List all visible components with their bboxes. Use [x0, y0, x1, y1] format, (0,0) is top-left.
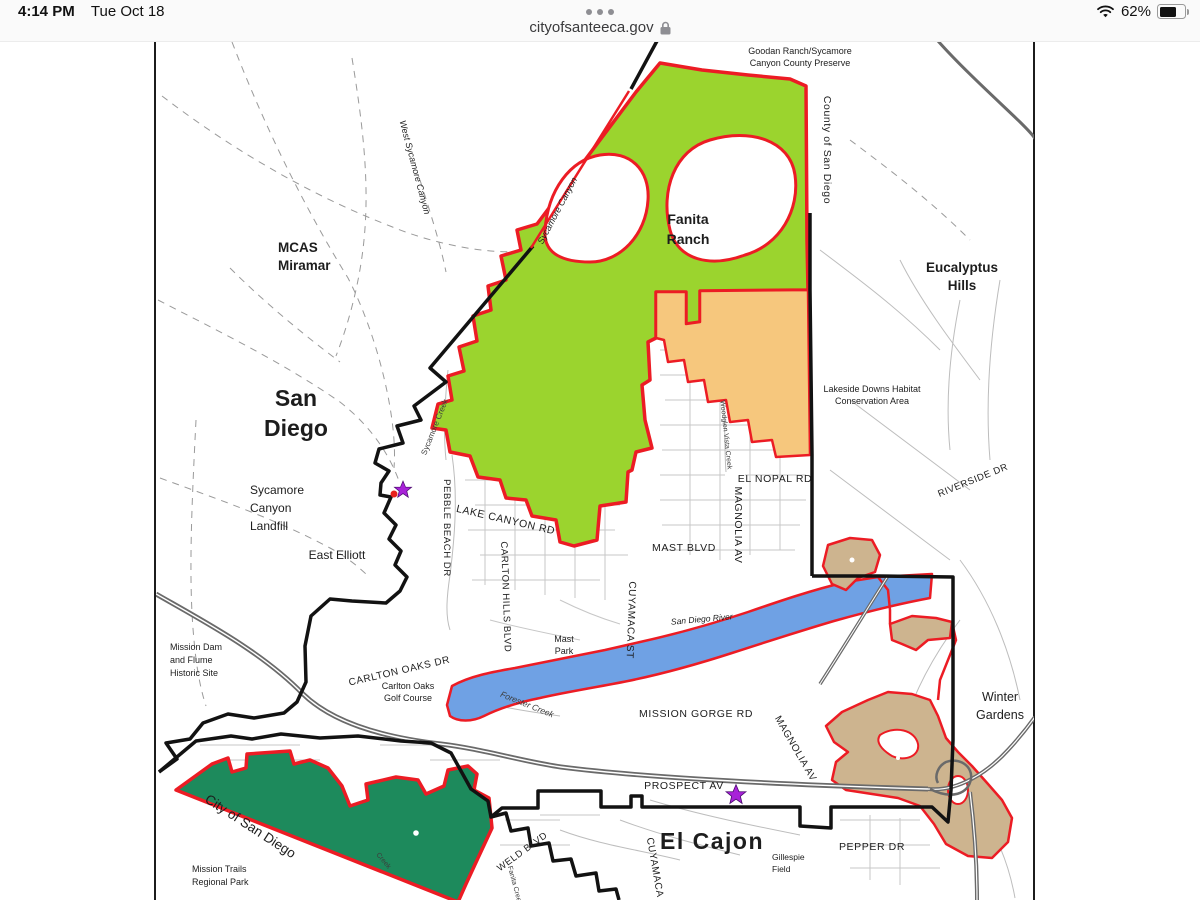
label-lakeside-downs: Lakeside Downs Habitat [823, 384, 921, 394]
label-lakeside-downs-2: Conservation Area [835, 396, 909, 406]
label-east-elliott: East Elliott [309, 548, 366, 562]
label-carlton-oaks-golf-2: Golf Course [384, 693, 432, 703]
label-mission-trails-2: Regional Park [192, 877, 249, 887]
clock: 4:14 PM Tue Oct 18 [18, 3, 165, 20]
label-gillespie-field-2: Field [772, 864, 791, 874]
label-san-diego-2: Diego [264, 415, 328, 441]
white-dot-1 [850, 558, 855, 563]
label-mission-gorge-rd: MISSION GORGE RD [639, 708, 753, 720]
label-goodan-ranch-2: Canyon County Preserve [750, 58, 851, 68]
url-label[interactable]: cityofsanteeca.gov [529, 19, 653, 36]
label-goodan-ranch: Goodan Ranch/Sycamore [748, 46, 852, 56]
label-sycamore-canyon-landfill: Sycamore [250, 483, 304, 497]
screen: Goodan Ranch/Sycamore Canyon County Pres… [0, 0, 1200, 900]
battery-percent: 62% [1121, 3, 1151, 20]
label-mcas-miramar-2: Miramar [278, 258, 331, 273]
label-mast-park-2: Park [555, 646, 574, 656]
white-dot-3 [896, 756, 900, 760]
address-bar[interactable]: cityofsanteeca.gov [0, 19, 1200, 41]
label-san-diego: San [275, 385, 317, 411]
label-county-of-san-diego: County of San Diego [821, 96, 833, 204]
label-prospect-av: PROSPECT AV [644, 780, 724, 792]
label-carlton-oaks-golf: Carlton Oaks [382, 681, 435, 691]
label-mast-blvd: MAST BLVD [652, 542, 716, 554]
label-mission-dam: Mission Dam [170, 642, 222, 652]
label-el-nopal-rd: EL NOPAL RD [738, 473, 812, 485]
label-winter-gardens-2: Gardens [976, 708, 1024, 722]
lock-icon [660, 21, 671, 35]
label-el-cajon: El Cajon [660, 828, 764, 854]
label-winter-gardens: Winter [982, 690, 1018, 704]
label-sycamore-canyon-landfill-3: Landfill [250, 519, 288, 533]
wifi-icon [1096, 4, 1115, 19]
label-mission-dam-3: Historic Site [170, 668, 218, 678]
label-fanita-ranch-2: Ranch [667, 231, 710, 247]
label-magnolia-av-north: MAGNOLIA AV [732, 486, 744, 563]
browser-chrome: 4:14 PM Tue Oct 18 62% cityofsanteeca.go… [0, 0, 1200, 42]
tab-overview-icon[interactable] [586, 9, 614, 15]
battery-icon [1157, 4, 1186, 19]
label-mission-dam-2: and Flume [170, 655, 213, 665]
white-dot-2 [413, 830, 419, 836]
label-pebble-beach-dr: PEBBLE BEACH DR [441, 479, 452, 577]
label-mcas-miramar: MCAS [278, 240, 318, 255]
status-icons: 62% [1096, 3, 1186, 20]
label-fanita-ranch: Fanita [667, 211, 708, 227]
time-label: 4:14 PM [18, 3, 75, 20]
label-mission-trails: Mission Trails [192, 864, 247, 874]
label-eucalyptus-hills: Eucalyptus [926, 260, 998, 275]
label-sycamore-canyon-landfill-2: Canyon [250, 501, 291, 515]
label-eucalyptus-hills-2: Hills [948, 278, 977, 293]
label-mast-park: Mast [554, 634, 574, 644]
label-gillespie-field: Gillespie [772, 852, 805, 862]
red-dot-marker [391, 491, 398, 498]
date-label: Tue Oct 18 [91, 3, 165, 20]
map-image: Goodan Ranch/Sycamore Canyon County Pres… [0, 0, 1200, 900]
label-pepper-dr: PEPPER DR [839, 841, 905, 853]
